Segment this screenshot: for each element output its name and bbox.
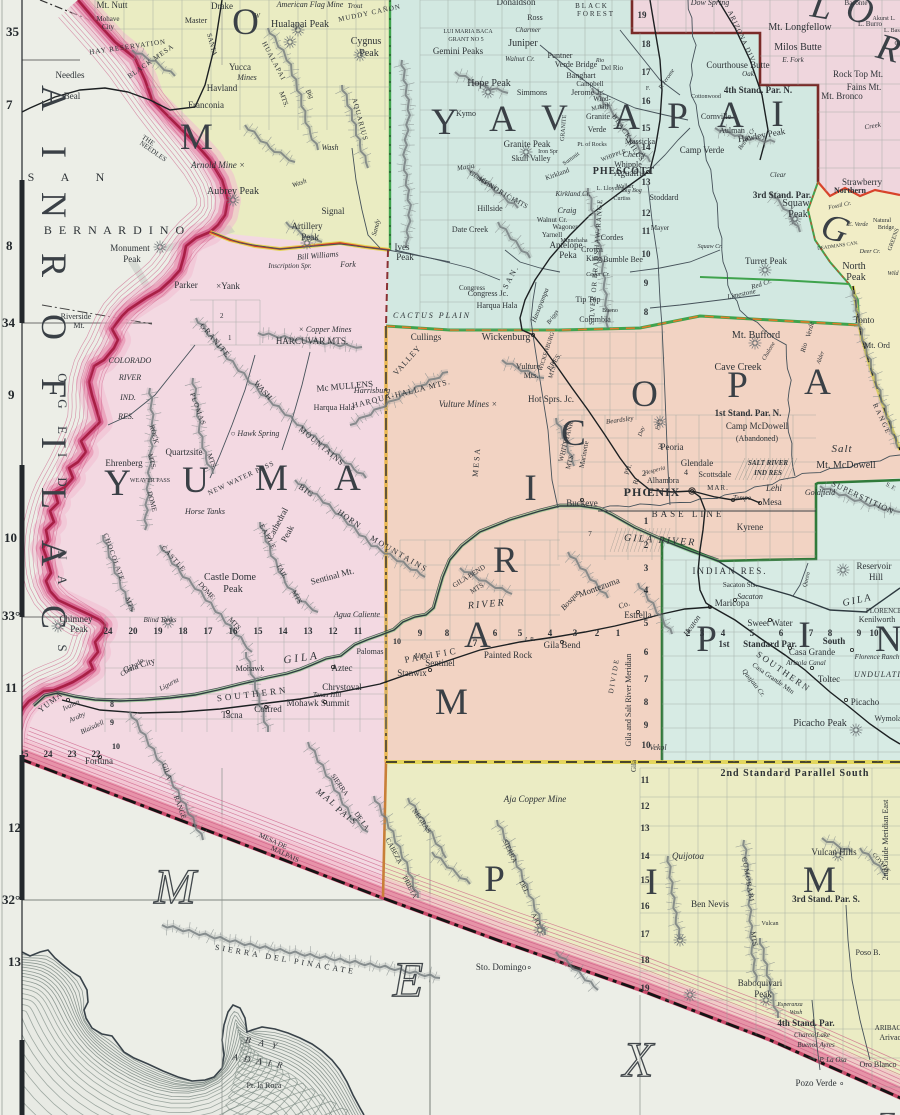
svg-text:Gila and Salt River Meridian: Gila and Salt River Meridian [624, 654, 633, 747]
svg-text:Cornville: Cornville [701, 112, 732, 121]
svg-text:I: I [875, 1101, 895, 1115]
svg-text:Kyrene: Kyrene [737, 522, 764, 532]
svg-text:Oro Blanco: Oro Blanco [859, 1060, 896, 1069]
svg-text:1: 1 [616, 628, 621, 638]
svg-text:○ Hawk Spring: ○ Hawk Spring [231, 429, 280, 438]
svg-text:M: M [153, 858, 198, 914]
svg-text:E. Verde: E. Verde [847, 222, 868, 228]
svg-text:Ross: Ross [527, 13, 543, 22]
svg-text:Alhambra: Alhambra [647, 476, 679, 485]
svg-text:Mt. Longfellow: Mt. Longfellow [768, 22, 832, 33]
svg-text:Vulture Mines ×: Vulture Mines × [439, 399, 498, 409]
svg-text:S: S [55, 644, 70, 651]
svg-text:3: 3 [573, 628, 578, 638]
svg-text:4th Stand. Par.: 4th Stand. Par. [777, 1018, 834, 1028]
svg-text:(Abandoned): (Abandoned) [736, 434, 779, 443]
svg-text:Esperanza: Esperanza [776, 1002, 802, 1008]
svg-text:Mt.: Mt. [73, 321, 84, 330]
svg-text:M: M [435, 682, 469, 723]
svg-text:1: 1 [644, 516, 649, 526]
svg-text:Ge: Ge [895, 41, 900, 47]
svg-text:Baconte: Baconte [845, 0, 868, 7]
svg-text:Tip Top: Tip Top [575, 295, 600, 304]
svg-text:Peak: Peak [223, 584, 242, 595]
svg-text:Mohave: Mohave [97, 15, 120, 23]
svg-text:Vulture: Vulture [516, 362, 540, 371]
svg-text:9: 9 [644, 720, 649, 730]
svg-text:Reservoir: Reservoir [857, 561, 892, 571]
svg-text:N: N [34, 192, 74, 218]
svg-text:Sto. Domingo∘: Sto. Domingo∘ [476, 962, 532, 972]
svg-text:16: 16 [642, 96, 652, 106]
svg-text:Granite: Granite [586, 112, 610, 121]
svg-text:A: A [55, 575, 70, 585]
svg-text:Master: Master [185, 16, 208, 25]
svg-text:Signal: Signal [321, 206, 345, 216]
svg-text:X: X [621, 1031, 656, 1087]
svg-text:Drake: Drake [211, 1, 233, 11]
svg-text:P. La Osa: P. La Osa [818, 1056, 847, 1064]
svg-text:Tacna: Tacna [221, 710, 242, 720]
svg-text:Verde: Verde [588, 125, 607, 134]
svg-text:Craig: Craig [558, 206, 577, 215]
svg-text:Mt. McDowell: Mt. McDowell [816, 460, 876, 471]
svg-text:Inscription Spr.: Inscription Spr. [267, 262, 311, 270]
svg-text:Arnold Mine ×: Arnold Mine × [190, 160, 245, 170]
svg-text:Texas Hill: Texas Hill [313, 691, 341, 699]
svg-text:Peak: Peak [123, 254, 141, 264]
svg-text:Stoddard: Stoddard [650, 193, 679, 202]
svg-text:RES.: RES. [117, 412, 134, 421]
svg-text:Tempe: Tempe [733, 494, 751, 502]
svg-text:3: 3 [700, 628, 705, 638]
svg-text:Peak: Peak [70, 624, 88, 634]
svg-text:8: 8 [110, 700, 114, 709]
svg-text:12: 12 [8, 820, 21, 835]
svg-text:Picacho: Picacho [851, 697, 880, 707]
svg-text:Curtiss: Curtiss [613, 196, 631, 202]
svg-text:Bueno: Bueno [602, 308, 618, 314]
svg-text:15: 15 [254, 626, 264, 636]
svg-text:R: R [34, 253, 74, 277]
svg-text:17: 17 [642, 67, 652, 77]
svg-text:33°: 33° [2, 608, 20, 623]
svg-text:5: 5 [644, 618, 649, 628]
svg-text:Peak: Peak [396, 252, 414, 262]
svg-text:2: 2 [595, 628, 600, 638]
svg-text:Camp McDowell: Camp McDowell [726, 421, 789, 431]
svg-text:Mt. Bufford: Mt. Bufford [732, 330, 780, 341]
svg-text:Mines: Mines [236, 73, 257, 82]
svg-text:Wash: Wash [790, 1010, 803, 1016]
svg-text:Kymo: Kymo [456, 109, 476, 118]
svg-text:Chrystoval: Chrystoval [322, 682, 362, 692]
svg-text:Wickenburg: Wickenburg [482, 332, 531, 343]
svg-text:1st: 1st [719, 639, 730, 649]
svg-text:Puntner: Puntner [548, 51, 573, 60]
svg-text:19: 19 [638, 10, 648, 20]
svg-text:D: D [55, 477, 70, 486]
svg-text:M: M [180, 117, 214, 158]
svg-text:4: 4 [684, 468, 688, 477]
svg-text:O: O [232, 2, 260, 43]
svg-text:Granite Peak: Granite Peak [504, 139, 551, 149]
svg-text:Peak: Peak [301, 232, 319, 242]
svg-text:23: 23 [68, 749, 78, 759]
svg-text:Buckeye: Buckeye [566, 498, 598, 508]
svg-text:I: I [34, 146, 74, 158]
svg-text:Charmer: Charmer [515, 26, 541, 34]
svg-text:19: 19 [154, 626, 164, 636]
svg-text:Mohawk: Mohawk [236, 664, 264, 673]
svg-text:13: 13 [641, 823, 651, 833]
svg-text:10: 10 [642, 249, 652, 259]
svg-text:Date Creek: Date Creek [452, 225, 488, 234]
svg-text:Juniper: Juniper [508, 38, 538, 49]
svg-text:8: 8 [644, 307, 649, 317]
svg-text:13: 13 [642, 177, 652, 187]
svg-text:8: 8 [644, 697, 649, 707]
svg-text:A: A [489, 99, 517, 140]
svg-text:I: I [524, 468, 537, 509]
svg-text:South: South [823, 636, 846, 646]
svg-text:O: O [55, 373, 70, 382]
svg-text:Courthouse Butte: Courthouse Butte [706, 60, 769, 70]
svg-text:I. R.: I. R. [524, 637, 535, 643]
svg-text:Needles: Needles [56, 70, 85, 80]
svg-text:Hualapai Peak: Hualapai Peak [271, 19, 329, 30]
svg-text:I: I [55, 453, 70, 457]
svg-text:6: 6 [493, 628, 498, 638]
svg-text:Skull Valley: Skull Valley [511, 154, 550, 163]
svg-text:Mt. Ord: Mt. Ord [864, 341, 890, 350]
svg-text:24: 24 [44, 749, 54, 759]
svg-text:MAR.: MAR. [707, 484, 729, 492]
svg-text:Mt. Nutt: Mt. Nutt [96, 0, 128, 10]
svg-text:Arizola Canal: Arizola Canal [785, 659, 826, 667]
svg-text:Rio: Rio [595, 58, 604, 64]
svg-text:Mohawk Summit: Mohawk Summit [287, 698, 350, 708]
svg-text:9: 9 [644, 278, 649, 288]
svg-text:8: 8 [6, 238, 13, 253]
svg-text:P: P [667, 96, 689, 137]
svg-text:Cygnus: Cygnus [351, 36, 382, 47]
svg-text:Peak: Peak [754, 989, 772, 999]
svg-text:GRANT NO 5: GRANT NO 5 [448, 37, 483, 43]
svg-text:5: 5 [518, 628, 523, 638]
svg-text:Franconia: Franconia [188, 100, 224, 110]
svg-text:Milos Butte: Milos Butte [774, 42, 822, 53]
svg-text:Kenilworth: Kenilworth [859, 615, 895, 624]
svg-text:Cave Creek: Cave Creek [715, 362, 762, 373]
svg-text:Goldfield: Goldfield [805, 488, 836, 497]
svg-text:11: 11 [354, 626, 363, 636]
svg-text:S A N: S A N [28, 170, 117, 184]
svg-text:Pozo Verde ∘: Pozo Verde ∘ [796, 1078, 845, 1088]
svg-text:5: 5 [750, 628, 755, 638]
svg-text:Sweet Water: Sweet Water [747, 618, 792, 628]
svg-text:R: R [493, 540, 519, 581]
svg-text:King: King [586, 254, 602, 263]
svg-text:19: 19 [641, 983, 651, 993]
svg-text:Poso B.: Poso B. [856, 948, 881, 957]
svg-text:Vulcan: Vulcan [762, 921, 779, 927]
svg-text:12: 12 [329, 626, 339, 636]
svg-text:12: 12 [641, 801, 651, 811]
svg-text:Cedar Cr.: Cedar Cr. [586, 272, 610, 278]
svg-text:Wash: Wash [321, 143, 338, 152]
svg-text:10: 10 [112, 742, 120, 751]
svg-text:Cullings: Cullings [411, 332, 442, 342]
svg-text:9: 9 [857, 628, 862, 638]
svg-text:13: 13 [304, 626, 314, 636]
svg-text:LUI MARIA BACA: LUI MARIA BACA [443, 29, 493, 35]
svg-text:4: 4 [548, 628, 553, 638]
svg-text:13: 13 [8, 954, 22, 969]
svg-text:Alpha: Alpha [413, 652, 431, 660]
svg-text:North: North [842, 261, 865, 272]
svg-text:3rd Stand. Par. S.: 3rd Stand. Par. S. [792, 894, 860, 904]
svg-text:7: 7 [588, 530, 592, 538]
svg-text:15: 15 [641, 875, 651, 885]
svg-text:22: 22 [92, 749, 102, 759]
svg-text:F.: F. [646, 86, 651, 92]
svg-text:Kirkland Cr.: Kirkland Cr. [554, 190, 590, 198]
svg-text:Del Rio: Del Rio [601, 64, 623, 72]
svg-text:Quartzsite: Quartzsite [166, 447, 203, 457]
svg-text:11: 11 [642, 226, 651, 236]
svg-text:Riverside: Riverside [61, 312, 92, 321]
svg-text:3: 3 [658, 442, 662, 451]
svg-text:Big Bog: Big Bog [622, 188, 642, 194]
svg-text:Crown: Crown [581, 245, 603, 254]
svg-text:4th Stand. Par. N.: 4th Stand. Par. N. [724, 85, 792, 95]
svg-text:Parker: Parker [174, 280, 198, 290]
svg-text:Peka: Peka [559, 250, 577, 260]
svg-text:7: 7 [809, 628, 814, 638]
svg-text:Trout: Trout [348, 2, 364, 10]
svg-text:Artillery: Artillery [292, 221, 323, 231]
svg-text:L. Bass: L. Bass [884, 28, 900, 34]
svg-text:11: 11 [641, 775, 650, 785]
svg-text:Casa Grande: Casa Grande [789, 647, 835, 657]
svg-text:14: 14 [642, 142, 652, 152]
svg-text:Agua Caliente: Agua Caliente [333, 610, 380, 619]
svg-text:Camp Verde: Camp Verde [680, 145, 725, 155]
svg-text:2: 2 [686, 628, 691, 638]
svg-text:Rock Top Mt.: Rock Top Mt. [833, 69, 883, 79]
svg-text:16: 16 [229, 626, 239, 636]
svg-text:Ehrenberg: Ehrenberg [105, 458, 143, 468]
svg-text:Yarnell: Yarnell [542, 231, 562, 239]
svg-text:Castle Dome: Castle Dome [204, 572, 256, 583]
svg-text:Bumble Bee: Bumble Bee [603, 255, 643, 264]
svg-text:Toltec: Toltec [818, 674, 840, 684]
svg-text:Vekol: Vekol [649, 743, 667, 752]
svg-text:RIVER: RIVER [118, 373, 141, 382]
svg-text:Hill: Hill [869, 572, 884, 582]
svg-text:Vulcan Hills: Vulcan Hills [811, 847, 857, 857]
svg-text:PHŒNIX: PHŒNIX [624, 485, 681, 499]
svg-text:Deer Cr.: Deer Cr. [859, 249, 881, 255]
svg-text:IND.: IND. [119, 393, 136, 402]
svg-text:E: E [392, 951, 424, 1007]
svg-text:18: 18 [642, 39, 652, 49]
svg-text:Monument: Monument [110, 243, 150, 253]
svg-text:BLACK: BLACK [575, 2, 609, 10]
svg-text:6: 6 [779, 628, 784, 638]
svg-text:Beal: Beal [64, 91, 81, 101]
svg-text:7: 7 [644, 674, 649, 684]
svg-text:Hillside: Hillside [477, 204, 503, 213]
svg-text:Simmons: Simmons [517, 88, 547, 97]
svg-text:× Copper Mines: × Copper Mines [299, 325, 352, 334]
svg-text:Peak: Peak [788, 209, 807, 220]
svg-text:FLORENCE: FLORENCE [866, 607, 900, 615]
svg-text:Campbell: Campbell [576, 80, 603, 88]
svg-text:Akurst L.: Akurst L. [873, 16, 896, 22]
svg-text:Dow Spring: Dow Spring [690, 0, 729, 7]
svg-text:WEAVER PASS: WEAVER PASS [130, 478, 170, 484]
svg-text:Mayer: Mayer [651, 224, 670, 232]
svg-text:COLORADO: COLORADO [109, 356, 152, 365]
svg-text:14: 14 [279, 626, 289, 636]
svg-text:B E R N A R D I N O: B E R N A R D I N O [44, 223, 186, 237]
svg-text:Banghart: Banghart [566, 71, 596, 80]
svg-text:24: 24 [104, 626, 114, 636]
svg-text:ARIBAC: ARIBAC [875, 1024, 900, 1032]
svg-text:Mts.: Mts. [524, 371, 538, 380]
svg-text:17: 17 [641, 929, 651, 939]
svg-text:Northern: Northern [834, 186, 867, 195]
svg-text:Iron Spr: Iron Spr [538, 149, 558, 155]
svg-text:Ives: Ives [395, 242, 410, 252]
svg-text:O: O [631, 374, 659, 415]
svg-text:8: 8 [828, 628, 833, 638]
svg-text:Quijotoa: Quijotoa [672, 851, 705, 861]
svg-text:FOREST: FOREST [577, 10, 615, 18]
svg-text:18: 18 [179, 626, 189, 636]
svg-text:Maricopa: Maricopa [715, 598, 749, 608]
svg-text:Cordes: Cordes [601, 233, 624, 242]
svg-text:Verde Bridge: Verde Bridge [555, 60, 598, 69]
svg-text:N: N [55, 550, 70, 560]
svg-text:11: 11 [5, 680, 17, 695]
svg-text:City: City [102, 23, 115, 31]
svg-text:4: 4 [721, 628, 726, 638]
svg-text:Natural: Natural [873, 218, 891, 224]
svg-text:Aja Copper Mine: Aja Copper Mine [503, 794, 567, 804]
svg-text:Pt. of Rocks: Pt. of Rocks [577, 141, 607, 148]
svg-text:Havland: Havland [207, 83, 238, 93]
svg-text:16: 16 [641, 901, 651, 911]
svg-text:14: 14 [641, 851, 651, 861]
svg-text:×Yank: ×Yank [216, 281, 240, 291]
svg-text:15: 15 [642, 123, 652, 133]
svg-text:Blind Tanks: Blind Tanks [144, 616, 177, 624]
svg-text:10: 10 [393, 637, 401, 646]
svg-text:Palomas: Palomas [356, 647, 383, 656]
svg-text:7: 7 [6, 97, 13, 112]
svg-text:P: P [696, 619, 718, 660]
svg-text:Tonto: Tonto [854, 315, 875, 325]
svg-text:E: E [55, 426, 70, 434]
svg-text:20: 20 [129, 626, 139, 636]
svg-text:10: 10 [4, 530, 17, 545]
svg-text:Peoria: Peoria [661, 442, 684, 452]
svg-text:HARCUVAR MTS.: HARCUVAR MTS. [276, 336, 348, 346]
svg-text:Gemini Peaks: Gemini Peaks [433, 46, 484, 56]
svg-text:Horse Tanks: Horse Tanks [184, 507, 225, 516]
svg-text:Lehi: Lehi [765, 483, 783, 493]
svg-text:Picacho Peak: Picacho Peak [793, 718, 847, 729]
svg-text:Hot Sprs. Jc.: Hot Sprs. Jc. [528, 394, 574, 404]
svg-text:9: 9 [8, 387, 15, 402]
svg-text:Buenos Ayres: Buenos Ayres [797, 1041, 835, 1049]
svg-text:Minnehaha: Minnehaha [561, 238, 588, 244]
svg-text:Clear: Clear [770, 171, 786, 179]
svg-text:8: 8 [445, 628, 450, 638]
svg-text:INDIAN RES.: INDIAN RES. [693, 566, 768, 576]
svg-text:P: P [484, 859, 506, 900]
svg-text:3: 3 [644, 563, 649, 573]
svg-text:Squaw Cr.: Squaw Cr. [698, 244, 723, 250]
svg-text:7: 7 [473, 638, 478, 648]
svg-text:10: 10 [870, 628, 880, 638]
svg-text:2nd Standard Parallel South: 2nd Standard Parallel South [721, 768, 870, 779]
svg-text:Peak: Peak [846, 272, 865, 283]
svg-text:G: G [55, 399, 70, 408]
svg-text:A: A [804, 362, 832, 403]
svg-text:Yucca: Yucca [229, 62, 251, 72]
svg-text:Wymola: Wymola [874, 714, 900, 723]
svg-text:Charco Lake: Charco Lake [794, 1031, 830, 1039]
svg-text:Gila: Gila [630, 759, 638, 772]
svg-text:Congress Jc.: Congress Jc. [468, 289, 508, 298]
svg-text:Donaldson: Donaldson [497, 0, 536, 7]
svg-text:Turret Peak: Turret Peak [745, 256, 787, 266]
svg-text:Stanwix: Stanwix [397, 668, 427, 678]
svg-text:Gila Bend: Gila Bend [544, 640, 581, 650]
svg-text:Florence Ranch: Florence Ranch [854, 653, 900, 661]
svg-text:34: 34 [2, 315, 16, 330]
svg-text:Scottsdale: Scottsdale [699, 470, 732, 479]
svg-text:Y: Y [104, 463, 132, 504]
svg-text:Harqua Hala: Harqua Hala [477, 301, 518, 310]
svg-text:18: 18 [641, 955, 651, 965]
svg-text:Peak: Peak [359, 48, 378, 59]
svg-text:American Flag Mine: American Flag Mine [276, 0, 344, 9]
svg-text:12: 12 [642, 208, 652, 218]
svg-text:UNDULATING: UNDULATING [854, 670, 900, 679]
svg-text:Wild: Wild [887, 271, 899, 277]
svg-text:1st Stand. Par. N.: 1st Stand. Par. N. [715, 408, 782, 418]
svg-text:Cottonwood: Cottonwood [691, 94, 721, 100]
svg-text:Walnut Cr.: Walnut Cr. [505, 55, 535, 63]
svg-text:Salt: Salt [831, 443, 852, 455]
svg-text:L: L [34, 487, 74, 509]
svg-text:Sacaton Sts.: Sacaton Sts. [723, 581, 757, 589]
svg-text:Bridge: Bridge [878, 225, 895, 231]
svg-text:Fork: Fork [339, 260, 356, 269]
svg-text:Aubrey Peak: Aubrey Peak [207, 186, 259, 197]
svg-text:Wagoner: Wagoner [552, 223, 578, 231]
svg-text:Chimney: Chimney [60, 614, 93, 624]
svg-text:Glendale: Glendale [681, 458, 713, 468]
svg-text:Hope Peak: Hope Peak [467, 78, 511, 89]
svg-text:E. Fork: E. Fork [781, 56, 804, 64]
svg-text:6: 6 [644, 647, 649, 657]
